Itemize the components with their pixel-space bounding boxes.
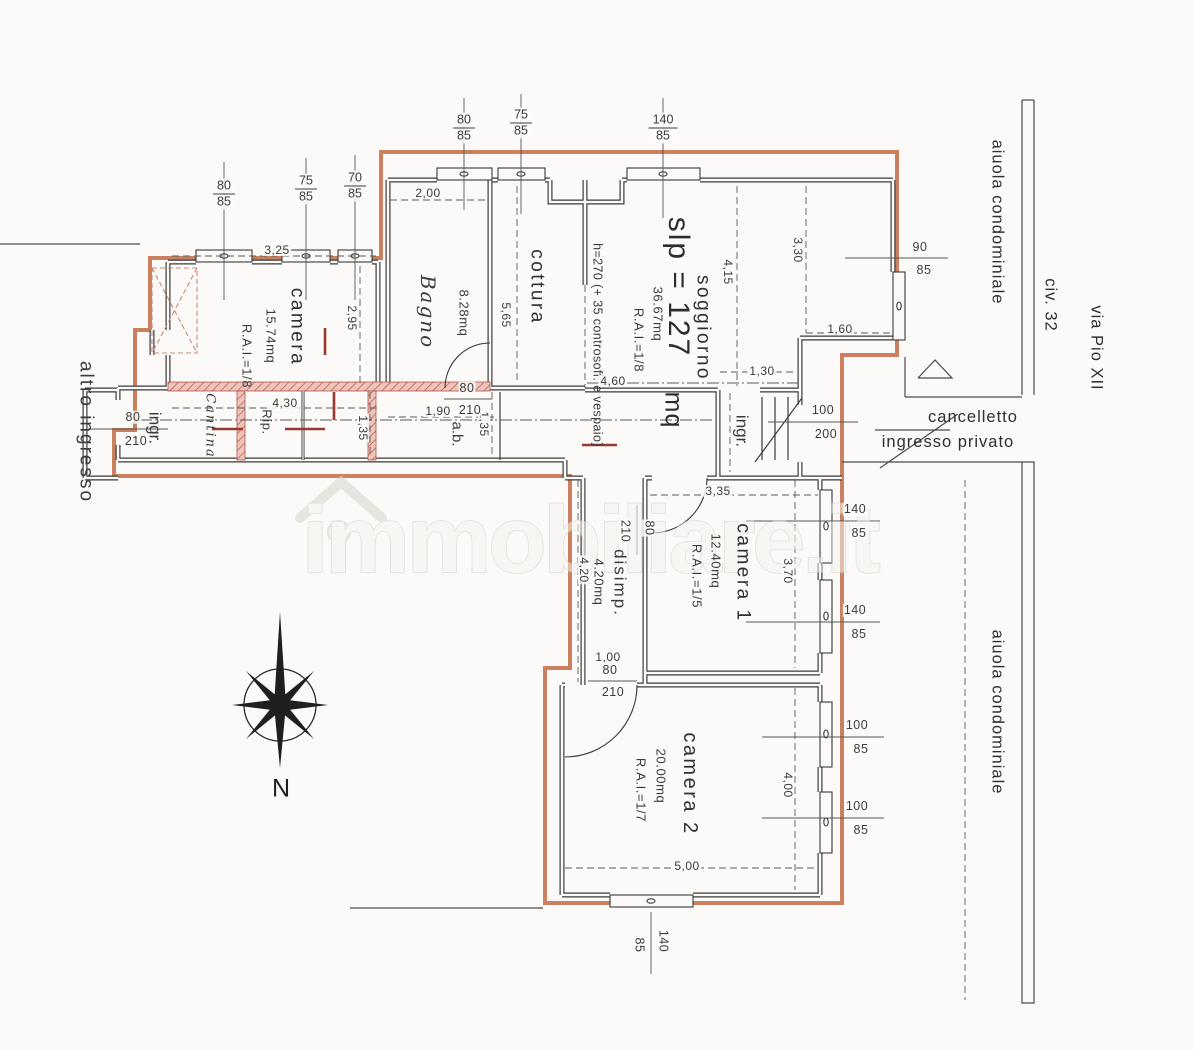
dim-camera2-height: 4,00 [782,770,794,799]
gate-arrow-icon [918,360,952,378]
room-area-camera2: 20.00mq [655,749,668,804]
room-area-camera1: 12.40mq [710,534,723,589]
dim-nook-width: 1,60 [825,323,854,335]
room-label-ingr-right: ingr. [734,415,751,447]
room-rai-camera: R.A.I.=1/8 [241,324,254,388]
room-label-rip: Rip. [261,409,274,435]
street-name-label: via Pio XII [1088,305,1105,390]
slp-total-label: slp = 127 [663,217,693,358]
window-label-camera2-bottom-h: 85 [633,937,646,954]
height-note: h=270 (+ 35 controsoff. e vespaio) [591,243,604,447]
room-rai-camera1: R.A.I.=1/5 [691,544,704,608]
dim-corridor-h1: 1,35 [357,413,369,442]
window-label-upper-c: 140 85 [649,113,678,144]
window-label-soggiorno-h: 85 [916,264,933,277]
window-label-camera2-bottom-w: 140 [657,929,670,953]
niche-hatch-box [152,268,197,353]
window-label-camera1-b-h: 85 [851,628,868,641]
window-label-camera2-b-h: 85 [853,824,870,837]
room-label-ingr-left: ingr. [147,412,164,444]
door-label-ab-w: 80 [459,382,476,395]
window-label-camera2-a-h: 85 [853,743,870,756]
other-entrance-label: altro ingresso [77,361,96,503]
room-label-camera2: camera 2 [680,732,700,835]
door-label-left-h: 210 [124,435,148,448]
room-label-camera1: camera 1 [734,523,753,622]
compass-rose-icon [232,612,328,768]
window-label-camera1-b-w: 140 [843,604,867,617]
dim-camera-width: 3,25 [262,244,291,256]
dim-camera2-width: 5,00 [672,860,701,872]
floor-plan-drawing: immobiliare.it [0,0,1194,1050]
dim-soggiorno-east: 3,30 [792,235,804,264]
window-label-camera2-a-w: 100 [845,719,869,732]
room-label-camera: camera [288,288,307,366]
dim-bagno-width: 2,00 [413,187,442,199]
room-area-bagno: 8.28mq [458,290,471,337]
room-area-camera: 15.74mq [265,309,278,364]
door-label-main-w: 100 [811,404,835,417]
dim-cottura-height: 5,65 [500,300,512,329]
room-rai-camera2: R.A.I.=1/7 [635,758,648,822]
room-label-disimp: disimp. [612,549,629,617]
door-label-left-w: 80 [125,411,142,424]
room-label-ab: a.b. [450,421,465,446]
room-rai-soggiorno: R.A.I.=1/8 [633,308,646,372]
gate-label-line1: cancelletto [928,409,1018,426]
dim-ab-width: 1,90 [423,405,452,417]
gate-label-line2: ingresso privato [882,434,1014,451]
dim-soggiorno-height: 4,15 [722,257,734,286]
window-label-upper-a: 80 85 [453,113,475,144]
dim-camera1-height: 3,70 [782,556,794,585]
door-label-camera2-h: 210 [601,686,625,699]
dim-camera1-width: 3,35 [703,485,732,497]
window-label-camera-a: 80 85 [213,179,235,210]
door-label-camera2-w: 80 [602,664,619,677]
door-label-main-h: 200 [814,428,838,441]
dim-camera-height: 2,95 [346,303,358,332]
dim-corridor-a: 4,30 [270,397,299,409]
dim-door-width: 1,00 [593,651,622,663]
door-label-camera1-w: 80 [643,520,656,537]
door-label-camera1-h: 210 [619,519,632,543]
dim-disimp-height: 4,20 [578,555,590,584]
room-label-cantina: Cantina [204,393,217,459]
dim-soggiorno-width: 4,60 [598,375,627,387]
floor-plan-page: immobiliare.it camera 15.74mq R.A.I.=1/8… [0,0,1194,1050]
aiuola-bottom-label: aiuola condominiale [989,630,1006,795]
window-label-soggiorno-w: 90 [912,241,929,254]
room-label-cottura: cottura [528,249,547,325]
window-label-camera1-a-h: 85 [851,527,868,540]
interior-thin-lines [500,392,802,462]
compass-north-label: N [272,777,290,802]
slp-unit-label: mq [661,392,686,429]
street-number-label: civ. 32 [1042,278,1059,331]
door-label-ab-h: 210 [458,404,482,417]
room-label-soggiorno: soggiorno [694,275,713,381]
window-label-camera2-b-w: 100 [845,800,869,813]
window-label-upper-b: 75 85 [510,108,532,139]
room-label-bagno: Bagno [418,275,438,349]
dim-soggiorno-low: 1,30 [747,365,776,377]
window-label-camera-b: 75 85 [295,174,317,205]
window-label-camera1-a-w: 140 [843,503,867,516]
window-label-camera-c: 70 85 [344,171,366,202]
room-area-disimp: 4.20mq [593,559,606,606]
aiuola-top-label: aiuola condominiale [989,140,1006,305]
